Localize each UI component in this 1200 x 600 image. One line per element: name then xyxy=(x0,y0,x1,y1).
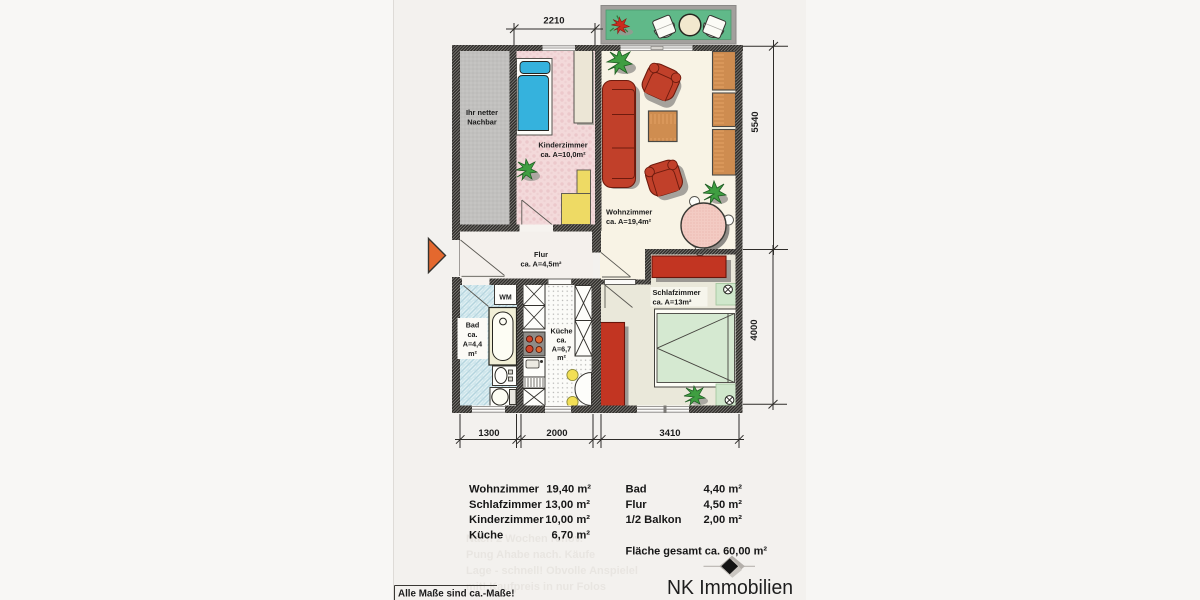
svg-text:A=4,4: A=4,4 xyxy=(463,340,482,349)
svg-text:Kinderzimmer: Kinderzimmer xyxy=(469,514,544,526)
svg-text:Flur: Flur xyxy=(626,499,648,511)
svg-text:m²: m² xyxy=(468,349,477,358)
svg-text:ca. A=19,4m²: ca. A=19,4m² xyxy=(606,217,652,226)
svg-text:Wohnzimmer: Wohnzimmer xyxy=(469,484,540,496)
svg-text:10,00 m²: 10,00 m² xyxy=(545,514,590,526)
svg-text:Küche: Küche xyxy=(551,327,573,336)
svg-text:WM: WM xyxy=(499,295,512,302)
svg-text:Alle Maße sind ca.-Maße!: Alle Maße sind ca.-Maße! xyxy=(398,589,515,600)
svg-text:ca.: ca. xyxy=(557,336,567,345)
svg-text:13,00 m²: 13,00 m² xyxy=(545,499,590,511)
svg-text:Wohnzimmer: Wohnzimmer xyxy=(606,208,652,217)
svg-text:NK Immobilien: NK Immobilien xyxy=(667,576,793,599)
svg-text:Kinderzimmer: Kinderzimmer xyxy=(538,141,587,150)
svg-text:Schlafzimmer: Schlafzimmer xyxy=(469,499,542,511)
svg-text:Bad: Bad xyxy=(626,484,647,496)
svg-text:Flur: Flur xyxy=(534,250,548,259)
svg-text:Schlafzimmer: Schlafzimmer xyxy=(653,288,701,297)
svg-text:m²: m² xyxy=(557,353,566,362)
svg-text:19,40 m²: 19,40 m² xyxy=(546,484,591,496)
svg-text:5540: 5540 xyxy=(750,111,761,132)
svg-text:Pung Ahabe nach. Käufe: Pung Ahabe nach. Käufe xyxy=(466,549,595,561)
svg-text:1300: 1300 xyxy=(478,428,499,439)
svg-text:6,70 m²: 6,70 m² xyxy=(551,529,590,541)
svg-text:ca.: ca. xyxy=(468,330,478,339)
svg-text:2000: 2000 xyxy=(546,428,567,439)
svg-text:4,50 m²: 4,50 m² xyxy=(703,499,742,511)
svg-text:4000: 4000 xyxy=(749,319,760,340)
svg-text:ca. A=10,0m²: ca. A=10,0m² xyxy=(540,150,586,159)
svg-text:2,00 m²: 2,00 m² xyxy=(703,514,742,526)
svg-text:Ihr netter: Ihr netter xyxy=(466,108,498,117)
svg-text:1/2 Balkon: 1/2 Balkon xyxy=(626,514,682,526)
svg-text:Nachbar: Nachbar xyxy=(467,118,497,127)
svg-text:ca. A=4,5m²: ca. A=4,5m² xyxy=(520,260,562,269)
svg-text:Lage - schnell! Obvolle Anspie: Lage - schnell! Obvolle Anspielel xyxy=(466,565,638,577)
svg-text:3410: 3410 xyxy=(659,428,680,439)
svg-text:Fläche gesamt ca. 60,00 m²: Fläche gesamt ca. 60,00 m² xyxy=(626,546,768,558)
svg-text:2210: 2210 xyxy=(543,16,564,27)
svg-text:4,40 m²: 4,40 m² xyxy=(703,484,742,496)
svg-text:Küche: Küche xyxy=(469,529,503,541)
svg-text:ca. A=13m²: ca. A=13m² xyxy=(653,298,692,307)
svg-text:Bad: Bad xyxy=(466,321,480,330)
